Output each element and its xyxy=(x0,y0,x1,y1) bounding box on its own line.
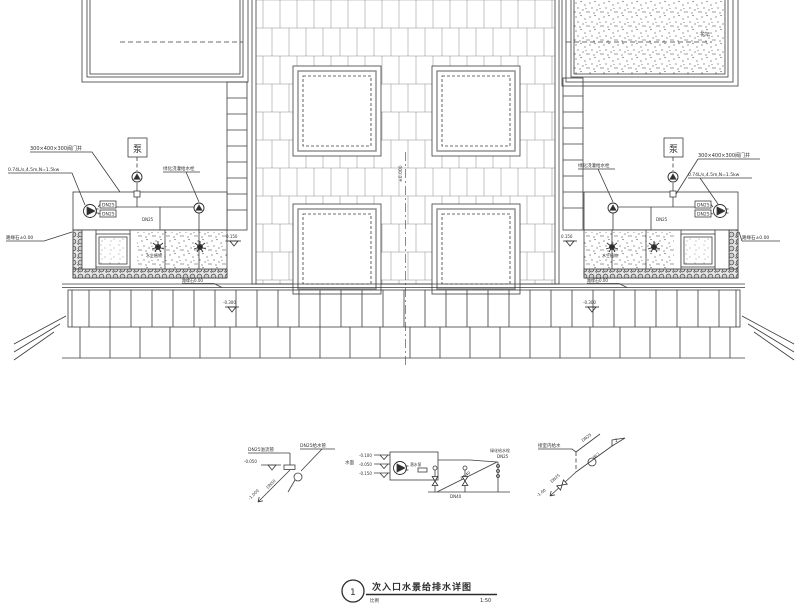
dn-label: DN25 xyxy=(656,217,668,222)
corner-miter-right xyxy=(742,316,794,360)
plaza-square-frame xyxy=(293,66,381,156)
dn-label: DN25 xyxy=(697,212,710,218)
valve-pit-label: 300×400×300阀门井 xyxy=(30,145,82,152)
pipe-dn-label: DN50 xyxy=(265,478,277,490)
level-value: -0.050 xyxy=(359,462,372,467)
axis-level-label: ±0.000 xyxy=(398,165,404,182)
band-level-icon xyxy=(585,307,599,312)
band-curb-label: 路缘石0.00 xyxy=(182,277,203,283)
tap-dn-label: DN25 xyxy=(497,454,509,459)
band-level-value: -0.300 xyxy=(223,300,236,305)
valve-box-glyph: 泵 xyxy=(669,144,678,155)
planter-top-left xyxy=(82,0,248,82)
pump-icon xyxy=(394,462,409,475)
plaza-square-frame xyxy=(432,66,520,156)
irrigation-tap-icon xyxy=(194,203,204,213)
bed-label: 水生植物 xyxy=(146,252,162,258)
central-plaza: ±0.000 xyxy=(252,0,559,368)
dn-down-label: DN25 xyxy=(549,472,561,483)
dn-label: DN25 xyxy=(142,217,154,222)
left-pool: 水生植物 0.150 xyxy=(73,230,241,278)
pump-spec-label: 0.74L/s,4.5m,N=1.5kw xyxy=(8,167,60,173)
title-block: 1 次入口水景给排水详图 比例 1:50 xyxy=(342,580,497,604)
refill-valve-icon xyxy=(294,473,302,481)
source-label: 接室内给水 xyxy=(538,442,561,449)
schematic-overflow: DN25溢流管 -0.050 DN50 -1.000 DN25给水管 xyxy=(244,442,335,502)
band-level-icon xyxy=(225,307,239,312)
supply-label: DN25给水管 xyxy=(300,442,327,449)
tap-label: 绿化给水栓 xyxy=(490,447,510,453)
water-meter-icon xyxy=(132,172,142,182)
corner-miter-left xyxy=(14,316,66,360)
scale-note: 比例 xyxy=(370,597,379,604)
curb-label-left: 路缘石±0.00 xyxy=(6,234,33,241)
dn-label: DN25 xyxy=(102,203,115,209)
valve-label: 阀门 xyxy=(592,451,601,460)
bed-label: 水生植物 xyxy=(602,252,618,258)
level-value: -0.150 xyxy=(359,471,372,476)
band-curb-label: 路缘石0.00 xyxy=(587,277,608,283)
dn-label: DN25 xyxy=(102,212,115,218)
right-pool: 水生植物 0.150 xyxy=(561,230,738,278)
valve-pit-label: 300×400×300阀门井 xyxy=(698,152,750,159)
drawing-title: 次入口水景给排水详图 xyxy=(372,581,472,593)
water-level-value: 0.150 xyxy=(561,234,573,239)
level-value: -1.00 xyxy=(536,487,548,498)
plaza-square-frame xyxy=(432,204,520,294)
scale-value: 1:50 xyxy=(480,598,491,604)
planter-label: 花坛 xyxy=(700,31,710,38)
planter-top-right: 花坛 xyxy=(562,0,738,86)
water-level-icon xyxy=(563,241,577,246)
level-b-value: -1.000 xyxy=(247,488,260,501)
tile-band-right xyxy=(563,78,583,230)
level-a-value: -0.050 xyxy=(244,459,257,464)
water-meter-icon xyxy=(668,172,678,182)
irrigation-tap-icon xyxy=(608,203,618,213)
dn-bottom-label: DN40 xyxy=(450,494,462,499)
dn-label: DN25 xyxy=(697,203,710,209)
water-level-icon xyxy=(227,241,241,246)
water-level-value: 0.150 xyxy=(226,234,238,239)
drawing-sheet: 花坛 xyxy=(0,0,800,616)
irrigation-label: 绿化浇灌给水栓 xyxy=(163,165,195,172)
schematic-pump-pit: 水面 -0.100 -0.050 -0.150 潜水泵 DN40 DN40 xyxy=(345,447,510,499)
level-value: -0.100 xyxy=(359,453,372,458)
band-level-value: -0.300 xyxy=(583,300,596,305)
pump-spec-label: 0.74L/s,4.5m,N=1.5kw xyxy=(688,172,740,178)
valve-box-glyph: 泵 xyxy=(133,144,142,155)
cad-canvas: 花坛 xyxy=(0,0,800,616)
pipe-flag-icon xyxy=(612,438,625,446)
piping-schematics: DN25溢流管 -0.050 DN50 -1.000 DN25给水管 水面 -0… xyxy=(244,432,625,502)
surface-label: 水面 xyxy=(345,459,354,466)
pump-label: 潜水泵 xyxy=(410,462,422,467)
detail-number: 1 xyxy=(350,588,356,598)
curb-label-right: 路缘石±0.00 xyxy=(742,234,769,241)
bottom-paving-bands: -0.300 -0.300 路缘石0.00 路缘石0.00 xyxy=(14,277,794,360)
tile-band-left xyxy=(227,82,247,230)
overflow-label: DN25溢流管 xyxy=(248,446,275,453)
site-plan: 花坛 xyxy=(6,0,794,368)
schematic-indoor-supply: 接室内给水 DN25 DN25 -1.00 阀门 1 xyxy=(536,432,625,498)
irrigation-label: 绿化浇灌给水栓 xyxy=(578,162,610,169)
riser-valve-icon xyxy=(432,466,438,492)
plaza-square-frame xyxy=(293,204,381,294)
